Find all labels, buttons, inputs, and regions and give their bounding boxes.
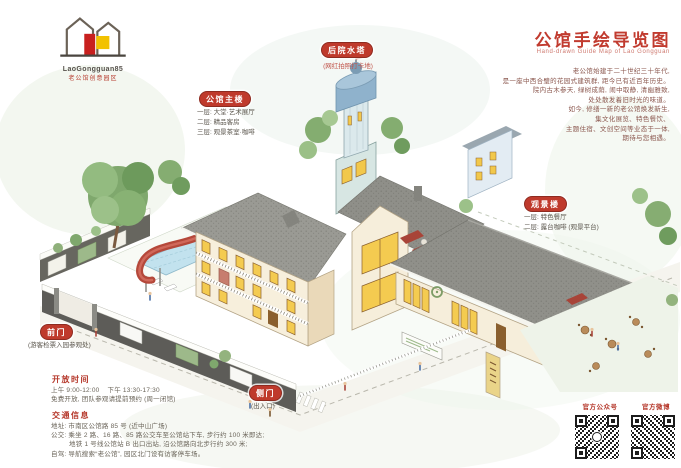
logo-houses-icon <box>58 12 128 60</box>
poster: LaoGongguan85 老公馆创意园区 公馆手绘导览图 Hand-drawn… <box>0 0 681 468</box>
label-water-tower: 后院水塔 <box>321 42 373 58</box>
intro-line: 主题住宿、文创空间等业态于一体, <box>503 125 670 135</box>
hours-heading: 开放时间 <box>52 374 90 385</box>
label-side-gate-caption: (出入口) <box>251 402 275 412</box>
label-front-gate: 前门 <box>40 324 73 340</box>
intro-line: 如今, 修缮一新的老公馆焕发新生, <box>503 105 670 115</box>
qr-weibo: 官方微博 <box>630 401 681 465</box>
qr-weibo-label: 官方微博 <box>630 401 681 411</box>
label-side-gate: 侧门 <box>249 385 282 401</box>
intro-line: 期待与您相遇。 <box>503 134 670 144</box>
label-view-house-caption: 一层: 特色餐厅 二层: 露台咖啡 (观景平台) <box>524 213 599 233</box>
qr-weibo-code <box>630 414 676 460</box>
intro-paragraph: 老公馆始建于二十世纪三十年代, 是一座中西合璧的花园式建筑群, 距今已有近百年历… <box>503 67 670 144</box>
label-water-tower-caption: (网红拍照打卡地) <box>300 62 396 72</box>
qr-wechat-label: 官方公众号 <box>574 401 626 411</box>
intro-line: 处处散发着旧时光的味道。 <box>503 96 670 106</box>
intro-line: 是一座中西合璧的花园式建筑群, 距今已有近百年历史。 <box>503 77 670 87</box>
traffic-lines: 地址: 市南区公馆路 85 号 (近中山广场) 公交: 乘坐 2 路、16 路、… <box>51 422 264 459</box>
label-main-building-caption: 一层: 大堂·艺术展厅 二层: 精品客房 三层: 观景茶室·咖啡 <box>197 108 255 138</box>
page-subtitle: Hand-drawn Guide Map of Lao Gongguan <box>537 49 670 55</box>
logo-text-cn: 老公馆创意园区 <box>50 73 136 82</box>
intro-line: 老公馆始建于二十世纪三十年代, <box>503 67 670 77</box>
label-view-house: 观景楼 <box>524 196 567 212</box>
logo: LaoGongguan85 老公馆创意园区 <box>50 12 136 82</box>
traffic-heading: 交通信息 <box>52 410 90 421</box>
label-main-building: 公馆主楼 <box>199 91 251 107</box>
intro-line: 院内古木参天, 绿树成荫, 闹中取静, 清幽雅致, <box>503 86 670 96</box>
intro-line: 集文化展览、特色餐饮、 <box>503 115 670 125</box>
qr-wechat-code <box>574 414 620 460</box>
page-title: 公馆手绘导览图 <box>535 26 672 51</box>
logo-text-en: LaoGongguan85 <box>50 66 136 73</box>
label-front-gate-caption: (游客检票入园参观处) <box>28 341 91 351</box>
qr-wechat: 官方公众号 <box>574 401 626 465</box>
hours-lines: 上午 9:00-12:00 下午 13:30-17:30 免费开放, 团队参观请… <box>51 386 176 404</box>
